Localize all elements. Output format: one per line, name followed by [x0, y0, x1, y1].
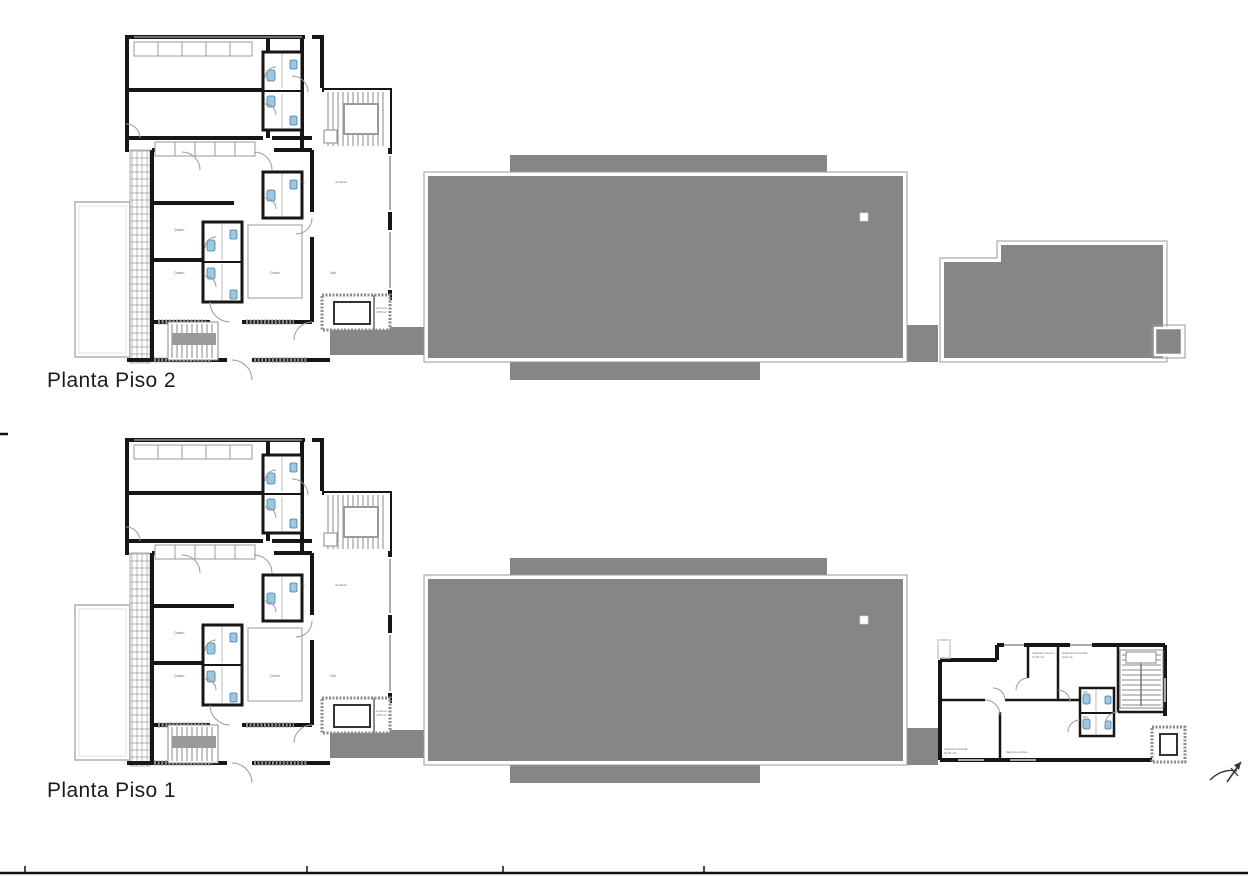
floor-plan-piso-1: WC WC — [75, 438, 1241, 783]
svg-text:20,00 m2: 20,00 m2 — [944, 751, 956, 755]
svg-text:WC: WC — [1083, 715, 1088, 719]
floor-plan-piso-2 — [75, 35, 1185, 380]
plan-title-piso-2: Planta Piso 2 — [47, 369, 176, 393]
annex-roof-piso2 — [940, 241, 1185, 362]
floor-plan-sheet: Quarto Quarto Closet Hall I.S. Vestíbulo… — [0, 0, 1248, 876]
annex-plan-piso1: WC WC — [938, 640, 1185, 762]
svg-text:9,00 m2: 9,00 m2 — [1062, 655, 1073, 659]
svg-text:10,00 m2: 10,00 m2 — [1032, 655, 1044, 659]
svg-text:Sala de reuniões: Sala de reuniões — [1006, 750, 1028, 754]
north-arrow-icon — [1210, 762, 1241, 782]
plan-title-piso-1: Planta Piso 1 — [47, 779, 176, 803]
annex-chimney-square — [1152, 325, 1185, 358]
annex-shaft-square — [1152, 727, 1185, 762]
annex-wc-core: WC WC — [1080, 688, 1114, 736]
svg-text:WC: WC — [1083, 690, 1088, 694]
annex-stair — [1120, 650, 1163, 708]
